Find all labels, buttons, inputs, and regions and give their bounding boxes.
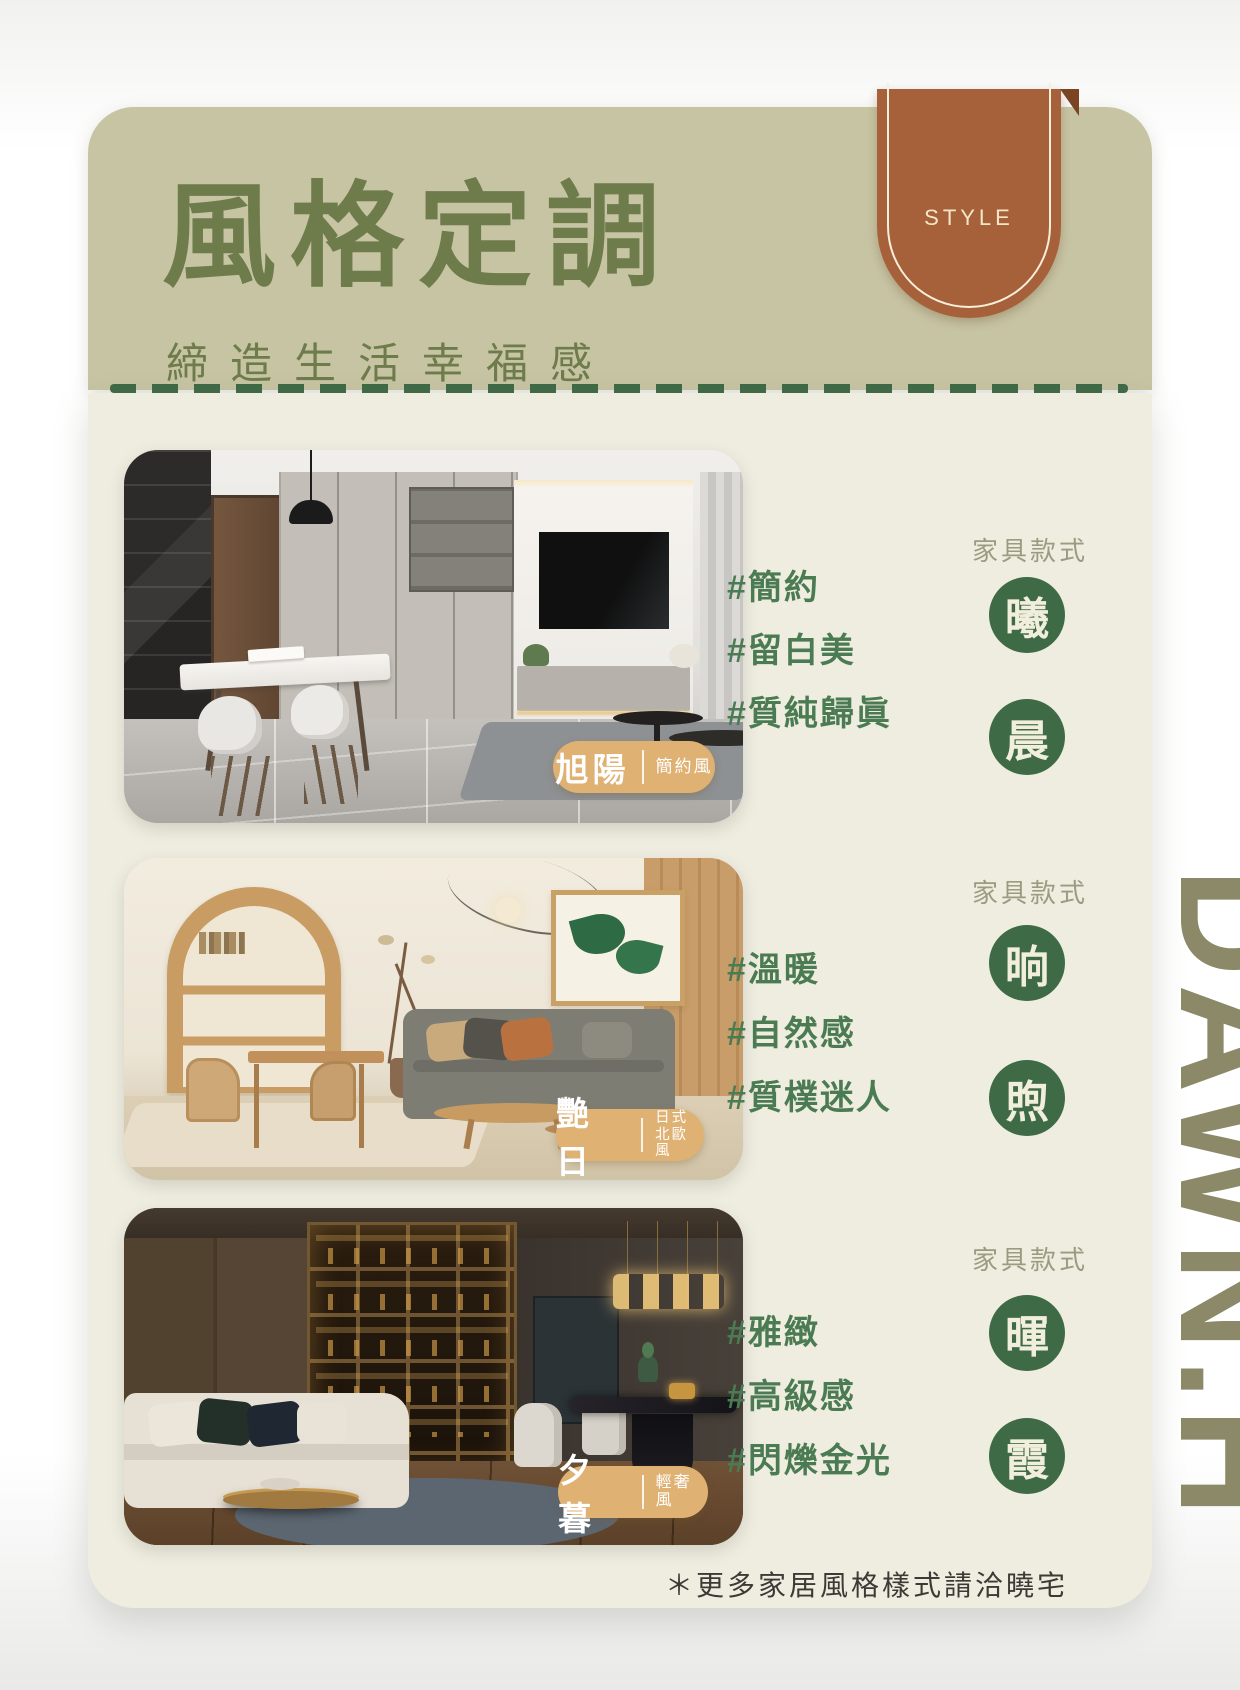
dashed-separator: [110, 384, 1128, 393]
hashtag: #溫暖: [727, 942, 820, 991]
style-type-2: 日式 北歐風: [655, 1110, 704, 1160]
hashtag: #質樸迷人: [727, 1070, 892, 1119]
photo2-rattan-chair: [186, 1058, 240, 1122]
footer-note: ＊更多家居風格樣式請洽曉宅: [665, 1564, 1068, 1604]
ribbon-inner-outline: [887, 83, 1051, 308]
hashtag: #質純歸眞: [727, 686, 892, 735]
badge-divider: [641, 1118, 643, 1152]
photo2-dining-table: [248, 1051, 384, 1063]
style-name-1: 旭陽: [556, 743, 630, 791]
furniture-item-badge: 晨: [989, 699, 1065, 775]
furniture-item-badge: 暉: [989, 1295, 1065, 1371]
photo3-pillow: [297, 1403, 347, 1443]
style-ribbon: STYLE: [877, 89, 1061, 318]
style-type-3: 輕奢風: [656, 1474, 708, 1511]
hashtag: #閃爍金光: [727, 1433, 892, 1482]
photo1-plant: [523, 644, 549, 666]
photo2-cushion: [499, 1016, 554, 1063]
photo3-pillow: [245, 1400, 304, 1448]
photo1-side-table: [613, 711, 703, 725]
photo2-books: [199, 932, 245, 954]
photo1-chair: [198, 696, 262, 754]
photo3-dining-chair: [514, 1403, 562, 1467]
photo1-lamp-wire: [310, 450, 312, 502]
photo3-gold-decor: [669, 1383, 695, 1399]
style-name-2: 艷日: [556, 1087, 629, 1183]
furniture-item-badge: 煦: [989, 1060, 1065, 1136]
hashtag: #高級感: [727, 1369, 856, 1418]
photo1-wood-door: [211, 495, 285, 725]
photo1-chair: [291, 685, 349, 739]
furniture-item-badge: 晌: [989, 925, 1065, 1001]
photo2-cushion: [582, 1022, 632, 1058]
style-badge-3: 夕暮 輕奢風: [558, 1466, 708, 1518]
badge-divider: [642, 1475, 644, 1509]
ribbon-label: STYLE: [877, 205, 1061, 231]
photo1-tv-console: [517, 666, 690, 711]
furniture-label-2: 家具款式: [972, 873, 1088, 910]
photo1-chair-legs: [304, 745, 358, 805]
photo1-open-shelf: [409, 487, 514, 591]
photo2-branch-leaves: [421, 955, 435, 964]
photo3-pillow: [196, 1397, 254, 1446]
photo3-gold-chandelier: [613, 1221, 724, 1309]
style-name-3: 夕暮: [558, 1444, 630, 1540]
photo1-chair-legs: [211, 756, 271, 816]
page-subtitle: 締造生活幸福感: [166, 330, 614, 391]
furniture-item-badge: 霞: [989, 1418, 1065, 1494]
photo2-branch-leaves: [378, 935, 394, 945]
photo1-cove-light: [514, 480, 694, 488]
photo3-gold-coffee-table: [223, 1491, 359, 1509]
hashtag: #簡約: [727, 560, 820, 609]
page-title: 風格定調: [162, 178, 674, 298]
furniture-label-1: 家具款式: [972, 531, 1088, 568]
photo1-flowers: [669, 644, 699, 668]
photo1-tv: [539, 532, 669, 629]
poster-canvas: 風格定調 締造生活幸福感 STYLE 旭陽: [0, 0, 1240, 1690]
style-type-2-line2: 北歐風: [655, 1127, 704, 1160]
hashtag: #留白美: [727, 623, 856, 672]
photo3-plant-vase: [638, 1356, 658, 1382]
brand-watermark: DAWN.H: [1158, 868, 1240, 1524]
photo3-marble-dining-table: [570, 1397, 737, 1413]
style-badge-2: 艷日 日式 北歐風: [556, 1109, 704, 1161]
furniture-label-3: 家具款式: [972, 1240, 1088, 1277]
style-type-1: 簡約風: [656, 757, 713, 777]
photo2-pendant-bulb: [495, 897, 521, 923]
hashtag: #自然感: [727, 1006, 856, 1055]
photo2-rattan-chair: [310, 1061, 356, 1121]
badge-divider: [642, 750, 644, 784]
style-badge-1: 旭陽 簡約風: [553, 741, 715, 793]
hashtag: #雅緻: [727, 1305, 820, 1354]
photo2-monstera-art: [551, 890, 685, 1006]
photo3-table-decor: [260, 1478, 300, 1490]
furniture-item-badge: 曦: [989, 577, 1065, 653]
style-type-2-line1: 日式: [655, 1110, 704, 1127]
